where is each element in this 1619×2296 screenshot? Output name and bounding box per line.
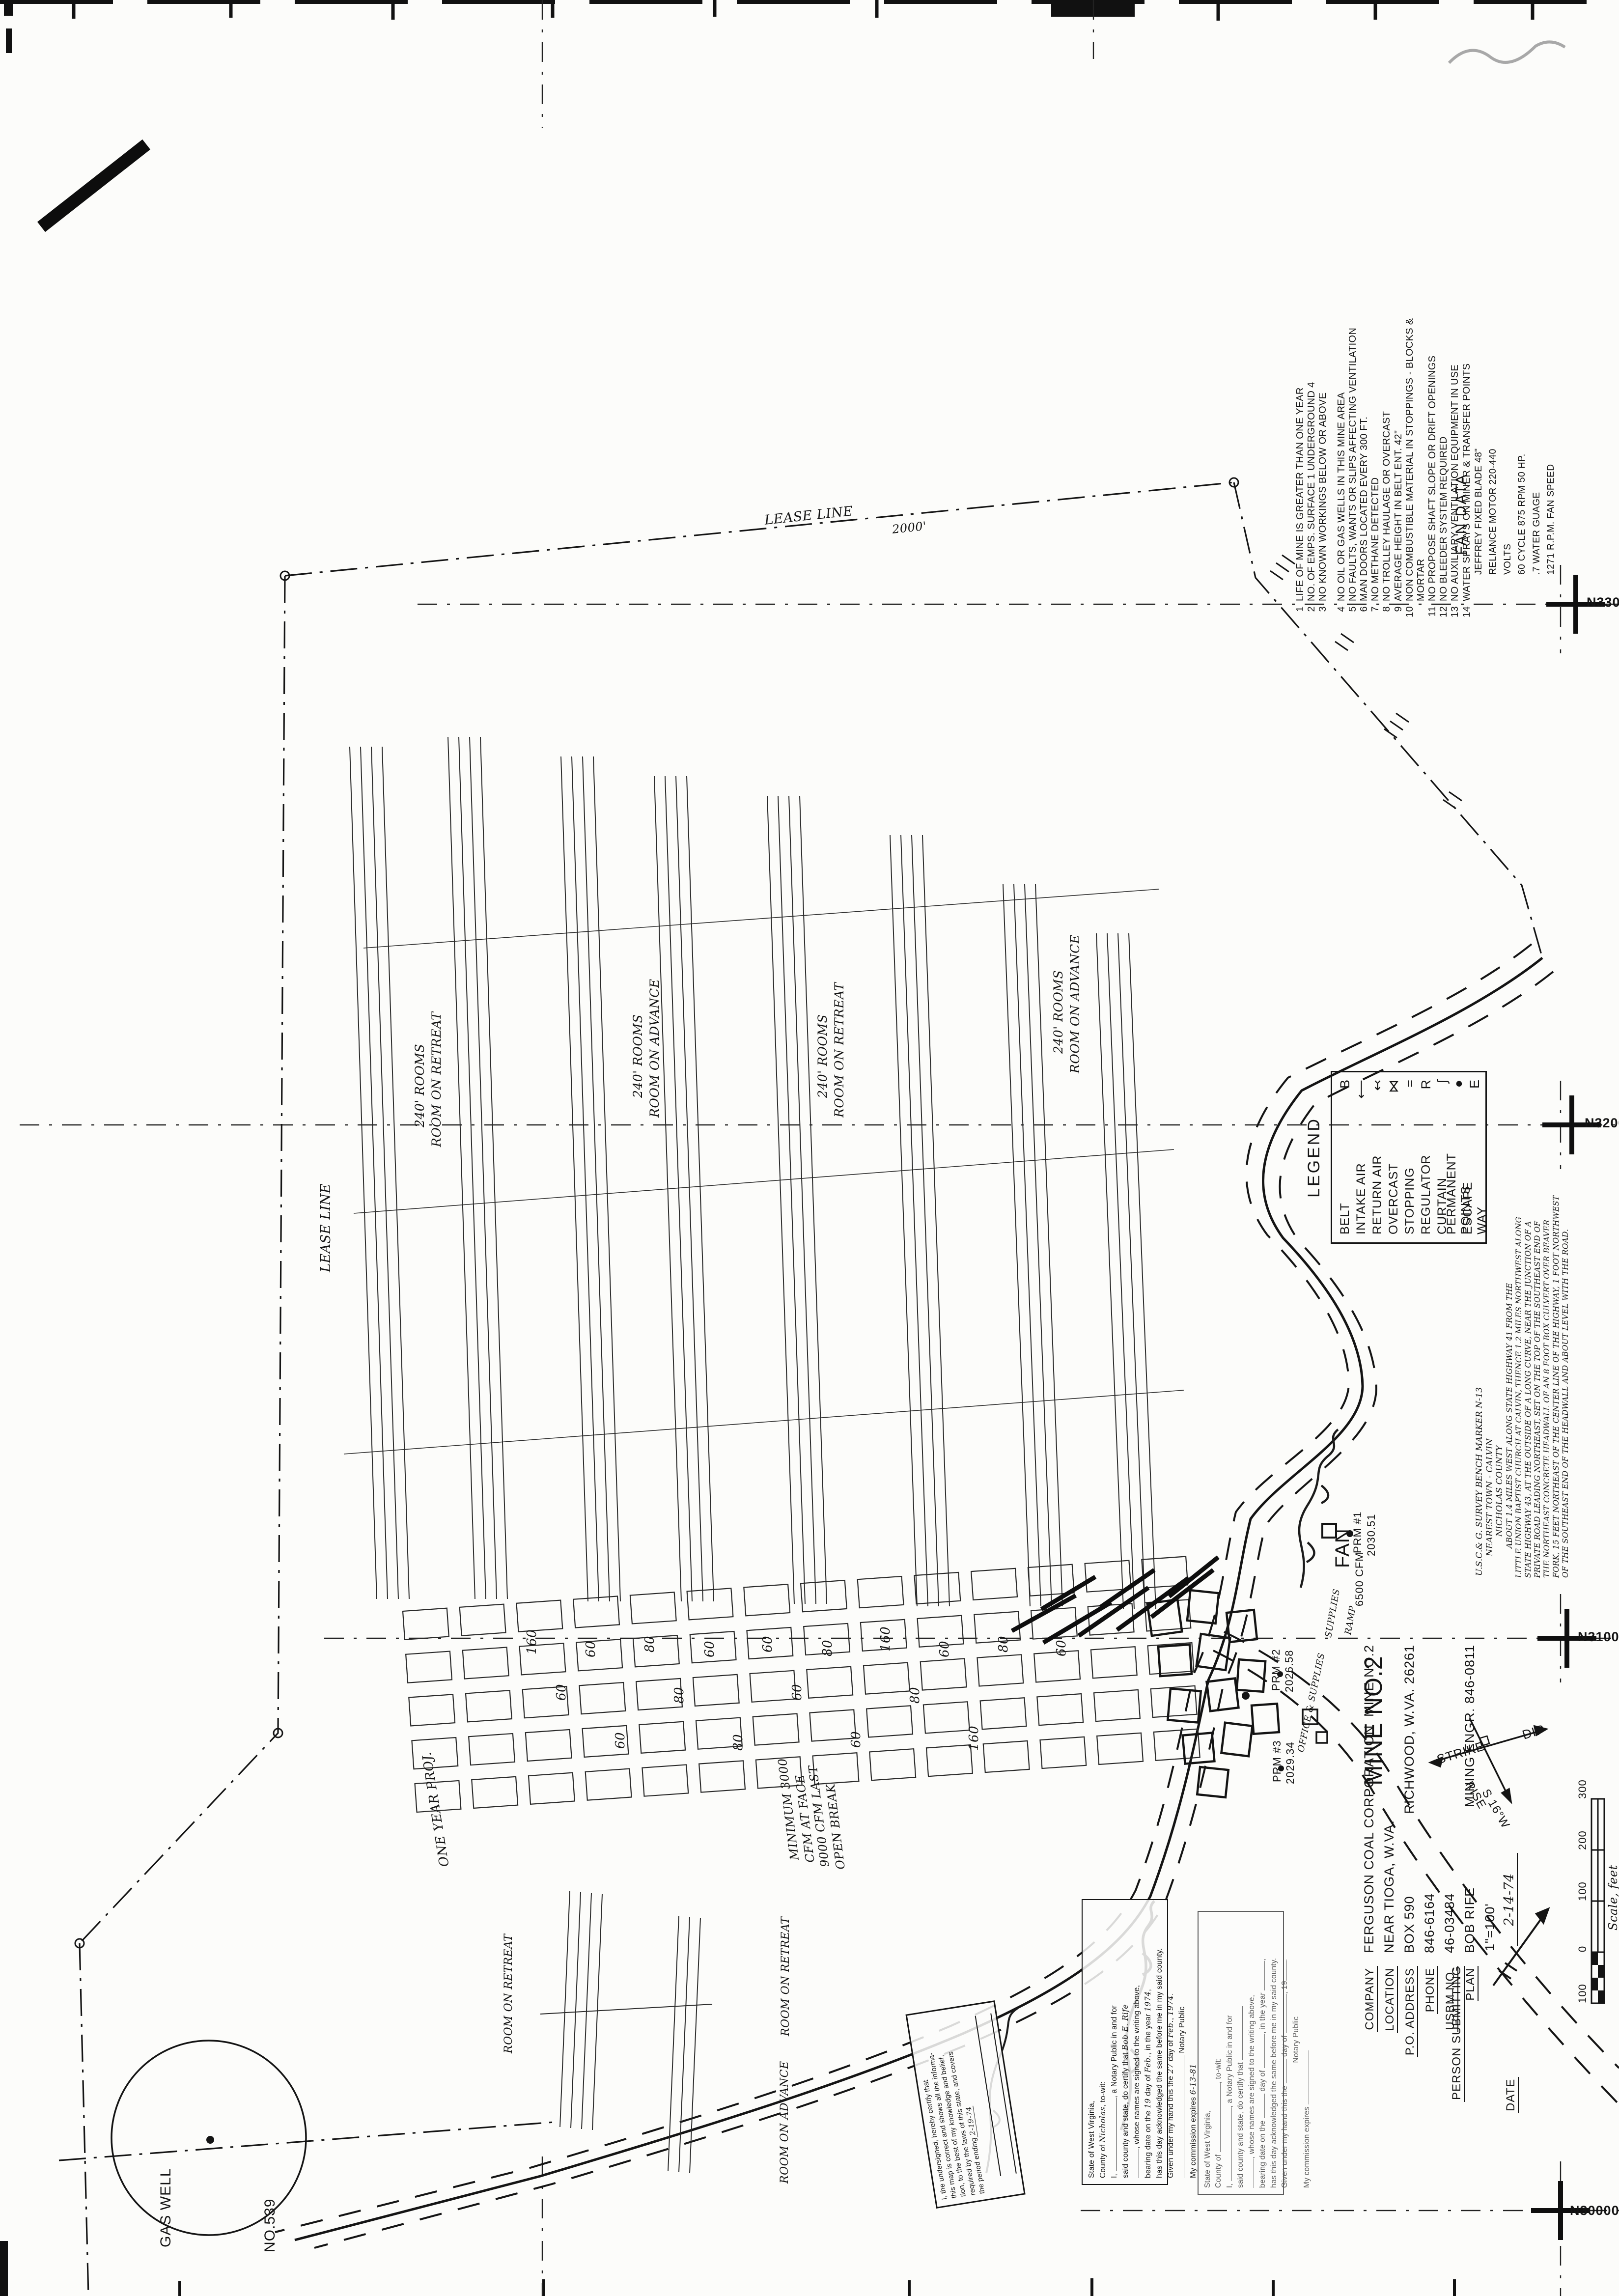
map-annotation: 2026.58 [1284, 1650, 1295, 1692]
form-text: Notary Public [1178, 2007, 1186, 2055]
map-annotation: PRM #2 [1270, 1649, 1282, 1691]
title-block-row: PERSON SUBMITTING PLANBOB RIFEMINING ENG… [1457, 1641, 1478, 2113]
form-text: day of [1144, 2072, 1152, 2098]
note-item: 12NO BLEEDER SYSTEM REQUIRED [1438, 304, 1450, 623]
top-left-mark [4, 3, 13, 16]
form-text: . [1281, 1959, 1289, 1961]
fan-data-line: 60 CYCLE 875 RPM 50 HP. [1515, 427, 1529, 575]
legend-item-label: BELT [1338, 1203, 1352, 1234]
form-blank [1280, 2059, 1287, 2083]
survey-body-line: THE NORTHEAST CONCRETE HEADWALL OF AN 8 … [1542, 1248, 1552, 1578]
map-annotation: 80 [997, 1636, 1010, 1652]
notary-line: County of , to-wit: [1213, 1918, 1224, 2188]
letter-e-icon: E [1467, 1079, 1482, 1151]
fan-data-line: .7 WATER GUAGE [1530, 427, 1544, 575]
notary-line: I, , a Notary Public in and for [1109, 1906, 1120, 2178]
survey-body-line: ABOUT 1.4 MILES WEST ALONG STATE HIGHWAY… [1505, 1248, 1514, 1548]
intake-arrow-icon: ⟵ [1354, 1079, 1369, 1153]
scale-bar [1591, 1799, 1604, 2003]
form-text: State of West Virginia, [1203, 2111, 1212, 2188]
title-block-value: NEAR TIOGA, W.VA. [1382, 1820, 1397, 1953]
form-blank [1257, 1961, 1265, 1990]
legend-title: LEGEND [1305, 1071, 1324, 1244]
form-blank [1132, 2149, 1139, 2178]
legend-item: BELTB [1337, 1079, 1353, 1234]
form-text: My commission expires [1303, 2104, 1311, 2188]
note-item: 1LIFE OF MINE IS GREATER THAN ONE YEAR [1295, 304, 1306, 623]
letter-r-icon: R [1419, 1079, 1434, 1153]
grid-coordinate-label: N32000 [1585, 1116, 1619, 1130]
corner-slash [41, 144, 146, 227]
note-number: 5 [1347, 601, 1359, 623]
map-annotation: 60 [850, 1731, 863, 1748]
scale-tick-label: 200 [1577, 1830, 1588, 1850]
handwritten-entry: 1974 [1144, 1991, 1152, 2011]
survey-body-line: OF THE SOUTHEAST END OF THE HEADWALL AND… [1561, 1248, 1570, 1578]
portal-dot [1242, 1692, 1250, 1700]
form-blank [1280, 1994, 1287, 2033]
note-item: 3NO KNOWN WORKINGS BELOW OR ABOVE [1317, 304, 1329, 623]
form-text: County of [1099, 2142, 1107, 2178]
scale-caption: Scale, feet [1607, 1865, 1619, 1931]
map-annotation: 2029.34 [1284, 1741, 1296, 1784]
note-number: 7 [1370, 601, 1381, 623]
map-annotation: ROOM ON ADVANCE [648, 979, 661, 1118]
bottom-left-mark [0, 2241, 8, 2296]
form-blank [1109, 2098, 1117, 2171]
map-annotation: ROOM ON RETREAT [780, 1917, 791, 2036]
note-text: NO TROLLEY HAULAGE OR OVERCAST [1381, 411, 1393, 601]
legend-item: REGULATORR [1418, 1079, 1434, 1234]
building-supply [1316, 1732, 1327, 1743]
form-text: bearing date on the [1144, 2108, 1152, 2178]
form-text: has this day acknowledged the same befor… [1270, 1958, 1278, 2188]
survey-head-line: U.S.C.& G. SURVEY BENCH MARKER N-13 [1475, 1248, 1485, 1576]
form-text: . [1167, 1993, 1175, 1995]
form-text: day of [1167, 2038, 1175, 2063]
notary-line: My commission expires [1302, 1918, 1312, 2188]
title-block-label: LOCATION [1383, 1966, 1397, 2113]
form-text: , to-wit: [1099, 2081, 1107, 2107]
note-text: NO OIL OR GAS WELLS IN THIS MINE AREA [1336, 392, 1347, 601]
note-text: AVERAGE HEIGHT IN BELT ENT. 42" [1393, 430, 1404, 601]
note-item: 5NO FAULTS, WANTS OR SLIPS AFFECTING VEN… [1347, 304, 1359, 623]
form-text: said county and state, do certify that [1121, 2050, 1130, 2178]
legend-item-label: REGULATOR [1419, 1155, 1433, 1234]
note-text: MAN DOORS LOCATED EVERY 300 FT. [1359, 417, 1370, 601]
legend: LEGEND BELTBINTAKE AIR⟵RETURN AIR↢OVERCA… [1305, 1071, 1500, 1244]
legend-item: ESCAPE WAYE [1467, 1079, 1483, 1234]
map-annotation: ROOM ON RETREAT [430, 1012, 443, 1147]
form-text: Notary Public [1292, 2016, 1300, 2065]
map-annotation: 160 [526, 1629, 539, 1654]
form-blank [1213, 2083, 1221, 2152]
map-annotation: 80 [643, 1636, 657, 1652]
title-block-value: 46-03484 [1442, 1893, 1457, 1953]
survey-monuments [75, 478, 1238, 1948]
note-text: NO METHANE DETECTED [1370, 477, 1381, 601]
map-annotation: FAN [1332, 1528, 1353, 1568]
note-number: 9 [1393, 601, 1404, 623]
note-text: NO PROPOSE SHAFT SLOPE OR DRIFT OPENINGS [1427, 356, 1438, 601]
form-text: , [1144, 1989, 1152, 1991]
notary-line: said county and state, do certify that [1235, 1918, 1246, 2188]
form-text: My commission expires [1189, 2095, 1198, 2178]
note-item: 7NO METHANE DETECTED [1370, 304, 1381, 623]
notary-line: said county and state, do certify that B… [1120, 1906, 1131, 2178]
form-blank [1257, 2094, 1265, 2118]
notary-line: Notary Public [1177, 1906, 1188, 2178]
letter-b-icon: B [1338, 1079, 1353, 1153]
note-text: NO FAULTS, WANTS OR SLIPS AFFECTING VENT… [1347, 328, 1359, 601]
map-annotation: 60 [938, 1641, 951, 1657]
form-text: Given under my hand this the [1281, 2083, 1289, 2188]
form-blank [1302, 2050, 1309, 2104]
form-text: , [1258, 1959, 1267, 1961]
notary-line: has this day acknowledged the same befor… [1269, 1918, 1280, 2188]
handwritten-entry: Feb. [1144, 2055, 1152, 2072]
form-text: , whose names are signed to the writing … [1248, 1995, 1256, 2158]
lease-boundary [59, 482, 1542, 2296]
note-number: 4 [1336, 601, 1347, 623]
form-text: , 19 [1281, 1981, 1289, 1994]
notes-list: 1LIFE OF MINE IS GREATER THAN ONE YEAR2N… [1295, 304, 1462, 623]
map-annotation: 240' ROOMS [414, 1044, 426, 1127]
notary-line: State of West Virginia, [1202, 1918, 1213, 2188]
note-text: NO BLEEDER SYSTEM REQUIRED [1438, 436, 1450, 601]
map-annotation: 80 [673, 1687, 686, 1704]
scale-tick-label: 100 [1577, 1881, 1588, 1901]
legend-item: STOPPING= [1402, 1079, 1418, 1234]
entry-lines [350, 737, 1156, 1609]
notary-block-filled: State of West Virginia,County of Nichola… [1082, 1899, 1168, 2185]
note-item: 6MAN DOORS LOCATED EVERY 300 FT. [1359, 304, 1370, 623]
form-blank [1177, 2055, 1184, 2178]
form-text: bearing date on the [1258, 2118, 1267, 2188]
map-annotation: 60 [614, 1732, 627, 1749]
overcast-bowtie-icon: ⋈ [1386, 1079, 1401, 1153]
title-block-value: 846-6164 [1422, 1893, 1437, 1953]
scale-tick-label: 0 [1577, 1946, 1588, 1952]
legend-item: RETURN AIR↢ [1369, 1079, 1386, 1234]
title-block-row: PHONE846-6164 [1417, 1641, 1437, 2113]
note-item: 2NO. OF EMPS. SURFACE 1 UNDERGROUND 4 [1306, 304, 1317, 623]
left-edge-mark [6, 28, 12, 53]
note-number: 3 [1317, 601, 1329, 623]
note-text: NON COMBUSTIBLE MATERIAL IN STOPPINGS - … [1404, 304, 1427, 601]
form-text: Given under my hand this the [1167, 2073, 1175, 2178]
map-annotation: 60 [585, 1641, 598, 1657]
notary-line: County of Nicholas, to-wit: [1097, 1906, 1109, 2178]
map-annotation: ROOM ON RETREAT [833, 982, 846, 1118]
fan-data-block: FAN DATA JEFFREY FIXED BLADE 48"RELIANCE… [1453, 427, 1566, 575]
survey-head-line: NEAREST TOWN - CALVIN [1485, 1248, 1495, 1556]
gas-well-dot [206, 2136, 214, 2144]
legend-item-label: ESCAPE WAY [1461, 1151, 1489, 1234]
survey-head-line: NICHOLAS COUNTY [1495, 1248, 1505, 1537]
survey-benchmark-note: U.S.C.& G. SURVEY BENCH MARKER N-13NEARE… [1475, 1248, 1572, 1578]
legend-item-label: RETURN AIR [1370, 1155, 1385, 1234]
map-annotation: NO.539 [262, 2199, 278, 2252]
pencil-scribble [1449, 42, 1565, 63]
form-text: day of [1258, 2068, 1267, 2094]
form-blank [1291, 2065, 1298, 2188]
form-text: said county and state, do certify that [1236, 2060, 1245, 2188]
notary-block-blank: State of West Virginia,County of , to-wi… [1198, 1911, 1284, 2195]
map-annotation: 6500 CFM [1354, 1552, 1365, 1606]
fan-data-line: JEFFREY FIXED BLADE 48" [1472, 427, 1486, 575]
form-text: , a Notary Public in and for [1110, 2005, 1118, 2098]
notary-line: bearing date on the 19 day of Feb., in t… [1143, 1906, 1154, 2178]
handwritten-entry: 27 [1166, 2064, 1175, 2074]
handwritten-entry: 19 [1144, 2098, 1152, 2108]
notary-line: bearing date on the day of , in the year… [1257, 1918, 1268, 2188]
notary-line: Given under my hand this the day of , 19… [1280, 1918, 1290, 2188]
note-number: 11 [1427, 601, 1438, 623]
map-annotation: 160 [879, 1626, 893, 1652]
handwritten-entry: 6-13-81 [1189, 2064, 1198, 2095]
map-annotation: PRM #1 [1352, 1512, 1363, 1553]
notary-line: Notary Public [1291, 1918, 1302, 2188]
legend-item: OVERCAST⋈ [1386, 1079, 1402, 1234]
title-block-value: BOB RIFE [1462, 1887, 1478, 1953]
map-annotation: 80 [909, 1687, 922, 1704]
title-block-label: PHONE [1424, 1966, 1437, 2113]
form-text: , in the year [1258, 1990, 1267, 2034]
note-item: 9AVERAGE HEIGHT IN BELT ENT. 42" [1393, 304, 1404, 623]
handwritten-entry: Feb. [1166, 2020, 1175, 2038]
notary-line: I, , a Notary Public in and for [1225, 1918, 1235, 2188]
notary-line: has this day acknowledged the same befor… [1154, 1906, 1165, 2178]
note-number: 2 [1306, 601, 1317, 623]
form-text: , in the year [1144, 2012, 1152, 2055]
form-blank [1257, 2034, 1265, 2068]
note-text: NO. OF EMPS. SURFACE 1 UNDERGROUND 4 [1306, 382, 1317, 601]
form-text: County of [1214, 2152, 1223, 2188]
map-annotation: 60 [1055, 1640, 1068, 1656]
legend-item-label: OVERCAST [1387, 1163, 1401, 1234]
map-annotation: 60 [555, 1684, 568, 1701]
map-scale-note: 1"=100' [1482, 1903, 1498, 1951]
note-number: 13 [1450, 601, 1461, 623]
form-text: has this day acknowledged the same befor… [1155, 1948, 1164, 2178]
notary-line: , whose names are signed to the writing … [1132, 1906, 1143, 2178]
map-annotation: MINE NO.2 [1361, 1655, 1387, 1786]
date-value: 2-14-74 [1502, 1853, 1518, 1946]
note-item: 8NO TROLLEY HAULAGE OR OVERCAST [1381, 304, 1393, 623]
mine-map-sheet: 1LIFE OF MINE IS GREATER THAN ONE YEAR2N… [0, 0, 1619, 2296]
grid-coordinate-label: N31000 [1578, 1630, 1619, 1644]
form-text: I, [1110, 2171, 1118, 2178]
note-text: LIFE OF MINE IS GREATER THAN ONE YEAR [1295, 387, 1306, 601]
map-annotation: 60 [703, 1641, 717, 1657]
survey-body-line: PRIVATE ROAD LEADING NORTHEAST, SET ON T… [1533, 1248, 1542, 1578]
note-number: 12 [1438, 601, 1450, 623]
map-annotation: 60 [761, 1636, 775, 1652]
form-blank [1225, 2107, 1232, 2181]
notary-line: Given under my hand this the 27 day of F… [1165, 1906, 1176, 2178]
map-annotation: 240' ROOMS [1052, 970, 1065, 1054]
note-number: 1 [1295, 601, 1306, 623]
grid-coordinate-label: N33000 [1587, 595, 1619, 609]
title-block-label: P.O. ADDRESS [1403, 1966, 1417, 2113]
survey-body-line: STATE HIGHWAY 43, AT THE OUTSIDE OF A LO… [1524, 1248, 1533, 1578]
note-text: NO KNOWN WORKINGS BELOW OR ABOVE [1317, 392, 1329, 601]
map-annotation: 160 [968, 1726, 981, 1751]
form-blank [1247, 2158, 1254, 2188]
note-number: 10 [1404, 601, 1427, 623]
scale-tick-label: 300 [1577, 1779, 1588, 1799]
form-text: , to-wit: [1214, 2058, 1223, 2084]
legend-item-label: INTAKE AIR [1354, 1163, 1368, 1234]
note-number: 6 [1359, 601, 1370, 623]
legend-item-label: STOPPING [1403, 1167, 1417, 1234]
form-blank [1235, 2006, 1243, 2060]
map-annotation: ROOM ON RETREAT [503, 1934, 514, 2053]
map-annotation: 80 [821, 1640, 835, 1656]
map-annotation: ROOM ON ADVANCE [1069, 935, 1082, 1074]
map-annotation: LEASE LINE [319, 1183, 333, 1272]
notary-line: State of West Virginia, [1087, 1906, 1097, 2178]
map-annotation: 80 [732, 1734, 745, 1751]
return-arrow-icon: ↢ [1370, 1079, 1385, 1153]
stopping-bars-icon: = [1402, 1079, 1418, 1153]
handwritten-entry: Bob E. Rife [1121, 2004, 1130, 2050]
handwritten-entry: 1974 [1166, 1995, 1175, 2016]
note-number: 8 [1381, 601, 1393, 623]
form-text: day of [1281, 2033, 1289, 2059]
date-label: DATE [1504, 2077, 1519, 2113]
map-annotation: 60 [791, 1684, 804, 1701]
note-number: 14 [1461, 601, 1473, 623]
filled-dot-icon: ● [1451, 1079, 1466, 1134]
title-block-label: PERSON SUBMITTING PLAN [1450, 1966, 1478, 2113]
notary-line: , whose names are signed to the writing … [1247, 1918, 1257, 2188]
map-annotation: GAS WELL [158, 2168, 174, 2247]
grid-coordinate-label: N30000 [1570, 2204, 1619, 2217]
form-text: I, [1226, 2181, 1234, 2188]
handwritten-entry: Nicholas [1098, 2107, 1107, 2143]
map-annotation: 240' ROOMS [632, 1014, 644, 1098]
form-text: , a Notary Public in and for [1226, 2015, 1234, 2107]
map-annotation: ROOM ON ADVANCE [779, 2061, 790, 2184]
map-annotation: 240' ROOMS [816, 1014, 829, 1098]
fan-data-title: FAN DATA [1453, 427, 1470, 555]
note-item: 10NON COMBUSTIBLE MATERIAL IN STOPPINGS … [1404, 304, 1427, 623]
form-text: State of West Virginia, [1088, 2101, 1096, 2178]
title-block-value-2: RICHWOOD, W.VA. 26261 [1402, 1645, 1417, 1814]
map-annotation: PRM #3 [1271, 1740, 1283, 1782]
fan-data-line: RELIANCE MOTOR 220-440 VOLTS [1486, 427, 1515, 575]
legend-item: INTAKE AIR⟵ [1353, 1079, 1369, 1234]
form-text: , [1167, 2016, 1175, 2020]
scale-tick-label: 100 [1577, 1984, 1588, 2003]
title-block-value: BOX 590 [1402, 1896, 1417, 1953]
bottom-tick-marks [180, 2278, 1454, 2296]
title-block-row: P.O. ADDRESSBOX 590RICHWOOD, W.VA. 26261 [1397, 1641, 1417, 2113]
survey-body-line: LITTLE UNION BAPTIST CHURCH AT CALVIN, T… [1514, 1248, 1524, 1578]
survey-body-line: FORK, 15 FEET NORTHEAST OF THE CENTER LI… [1552, 1248, 1561, 1578]
fan-data-line: 1271 R.P.M. FAN SPEED [1544, 427, 1558, 575]
form-text: , whose names are signed to the writing … [1133, 1985, 1141, 2149]
map-annotation: 2030.51 [1366, 1513, 1377, 1556]
form-blank [1280, 1961, 1287, 1981]
title-block-label: COMPANY [1363, 1966, 1377, 2113]
note-item: 4NO OIL OR GAS WELLS IN THIS MINE AREA [1336, 304, 1347, 623]
note-item: 11NO PROPOSE SHAFT SLOPE OR DRIFT OPENIN… [1427, 304, 1438, 623]
